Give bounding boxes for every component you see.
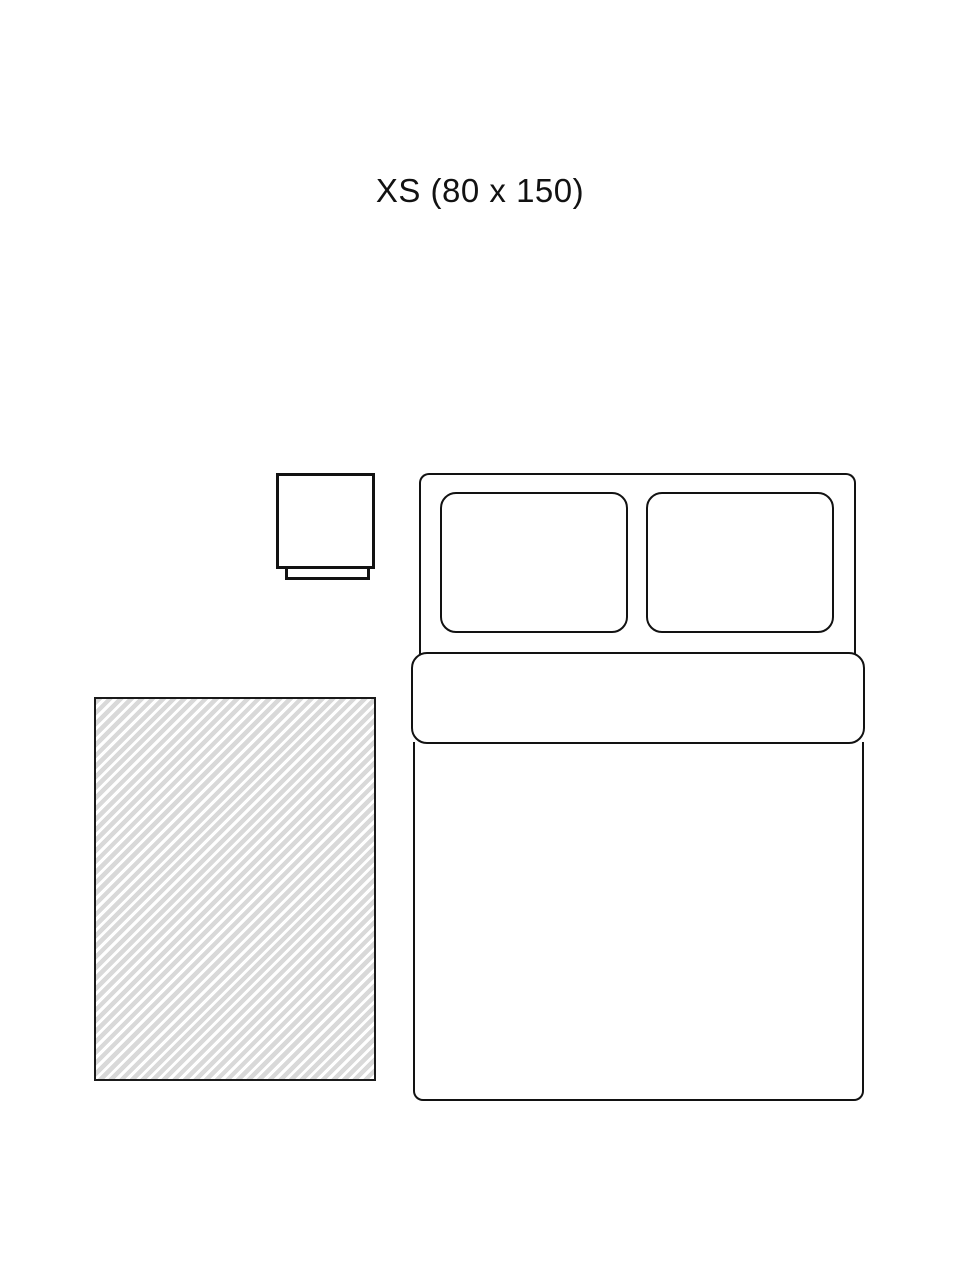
pillow-right [646,492,834,633]
bed-duvet-body [413,742,864,1101]
nightstand [276,473,375,569]
rug-size-guide-page: XS (80 x 150) [0,0,960,1280]
bed-duvet-fold [411,652,865,744]
rug-xs [94,697,376,1081]
size-title: XS (80 x 150) [0,172,960,210]
pillow-left [440,492,628,633]
